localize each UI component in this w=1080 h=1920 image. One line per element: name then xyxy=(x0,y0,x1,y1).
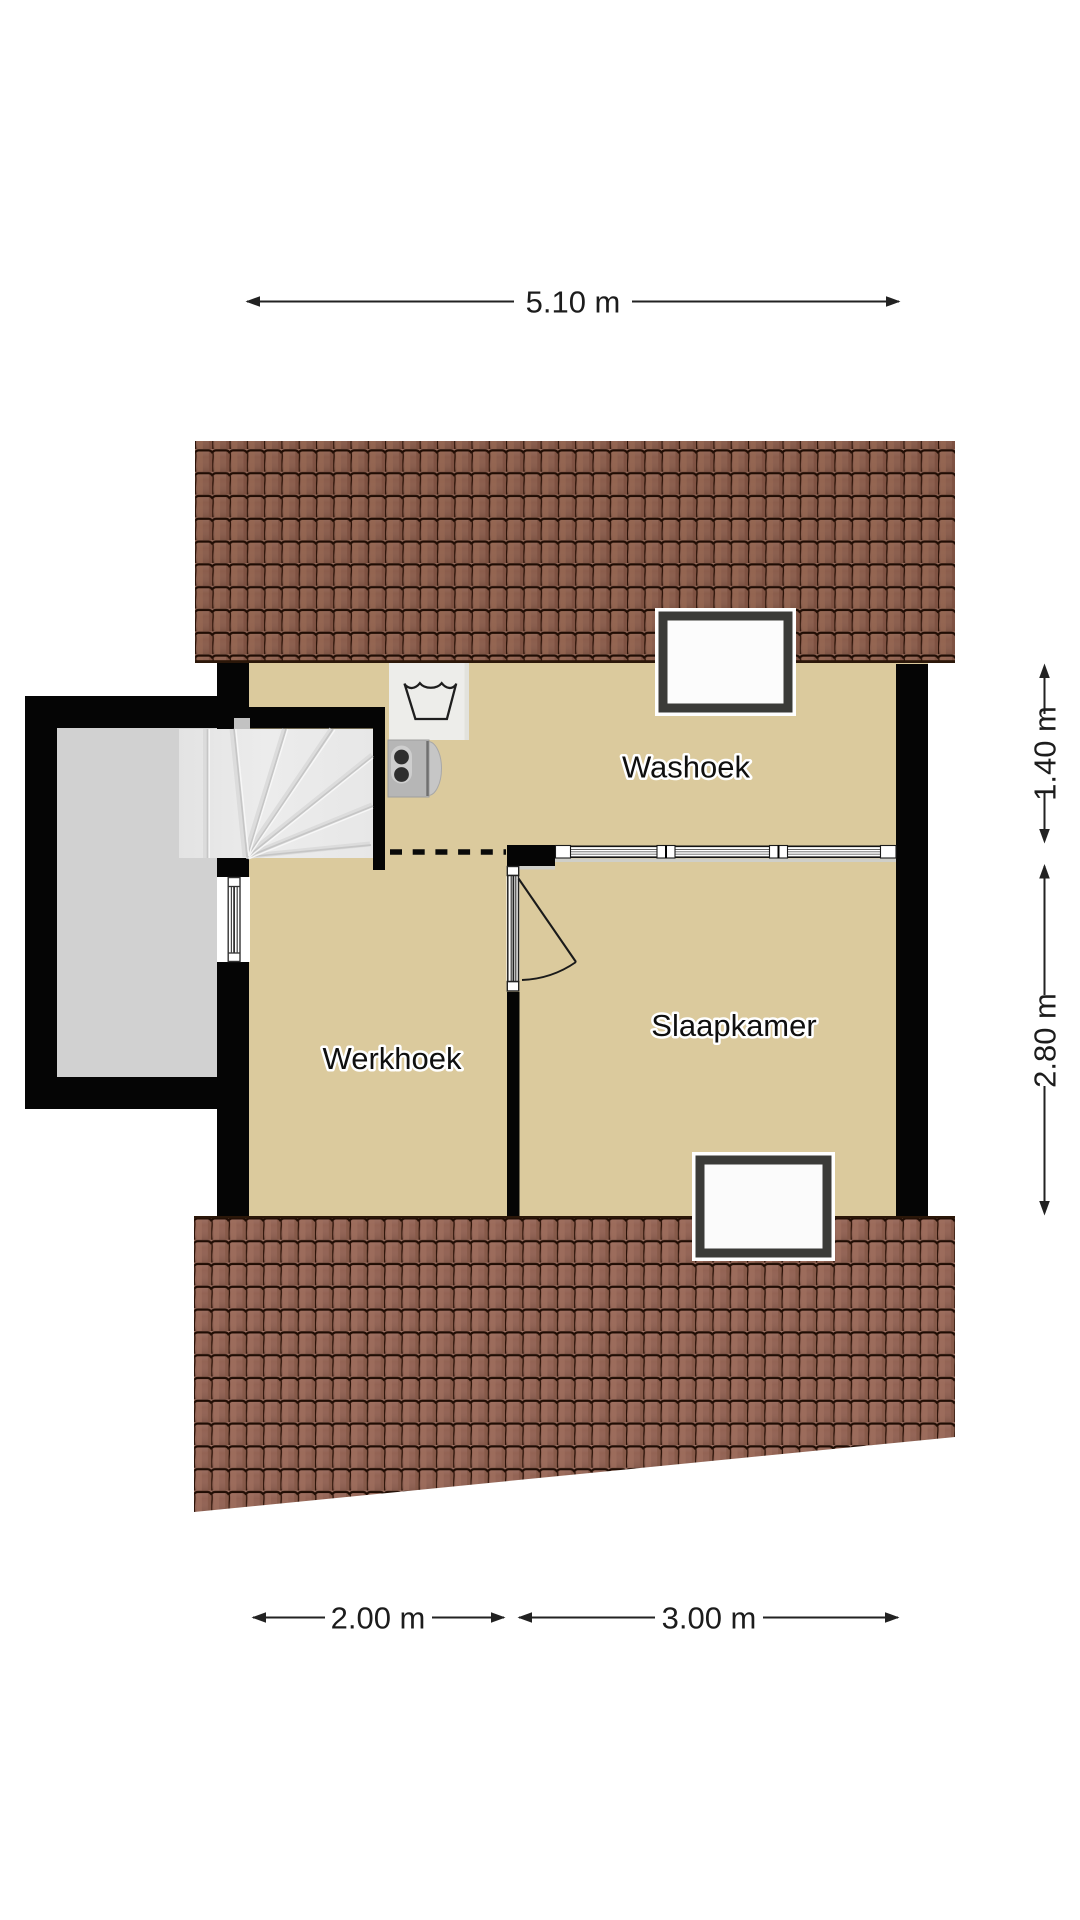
svg-text:2.00 m: 2.00 m xyxy=(331,1601,426,1636)
svg-text:1.40 m: 1.40 m xyxy=(1028,706,1063,801)
svg-text:5.10 m: 5.10 m xyxy=(526,285,621,320)
svg-text:2.80 m: 2.80 m xyxy=(1028,993,1063,1088)
svg-text:3.00 m: 3.00 m xyxy=(662,1601,757,1636)
svg-text:Slaapkamer: Slaapkamer xyxy=(651,1008,816,1043)
svg-text:Werkhoek: Werkhoek xyxy=(323,1041,462,1076)
svg-text:Washoek: Washoek xyxy=(622,750,751,785)
